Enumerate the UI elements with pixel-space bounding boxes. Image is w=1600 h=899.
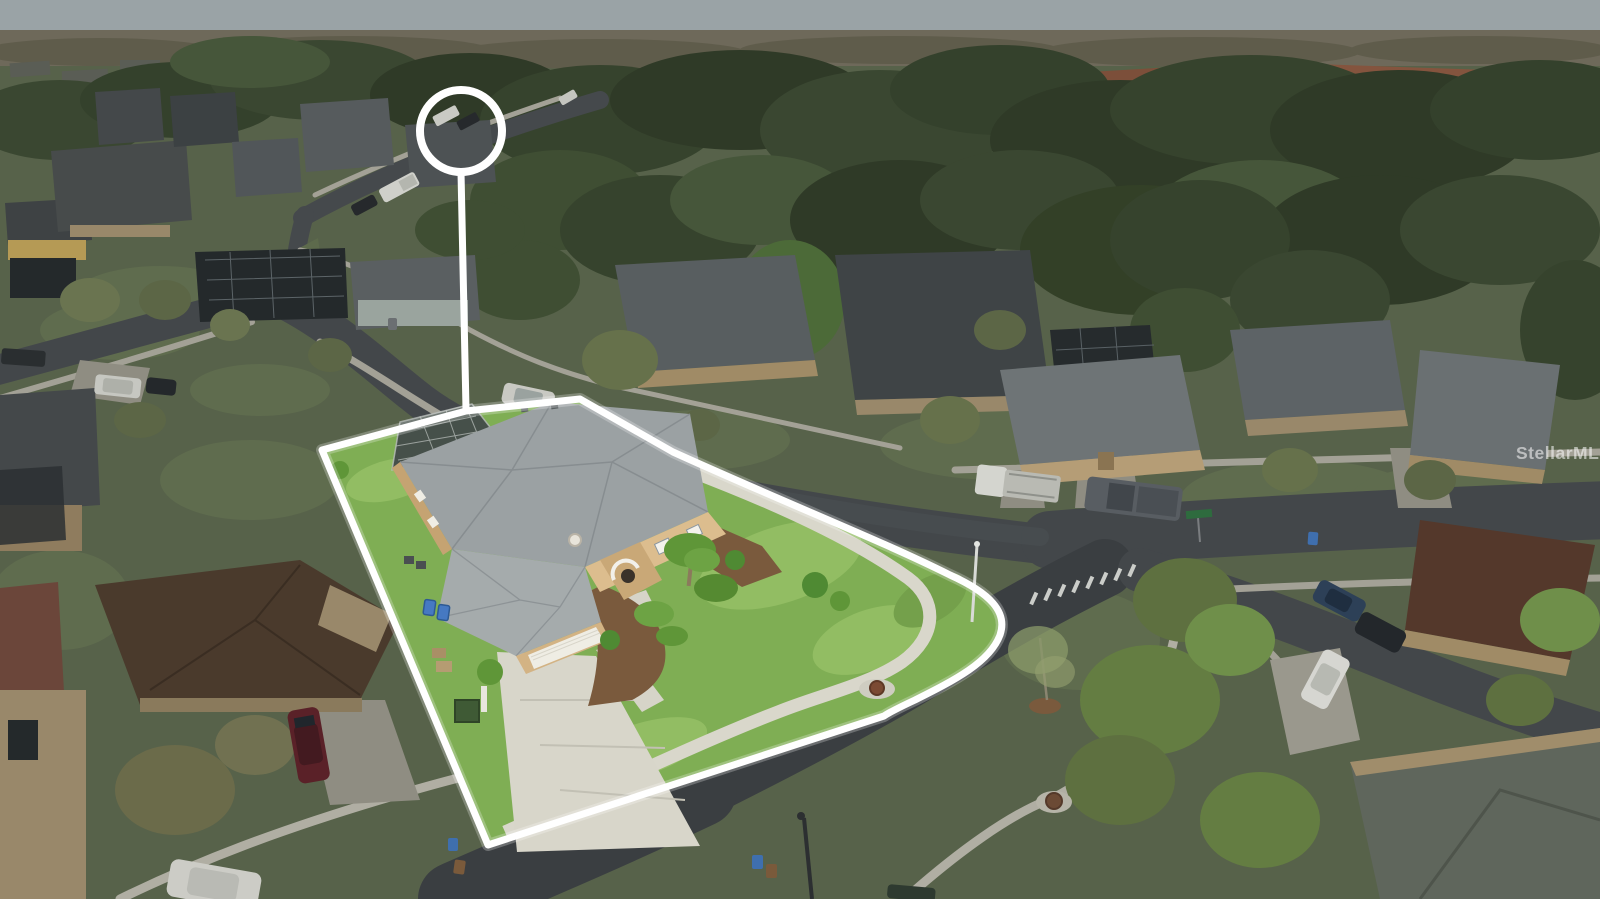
dark-pickup-far-left [1, 348, 46, 367]
manhole-southeast [1036, 791, 1072, 813]
dark-car-left [145, 377, 177, 396]
mulch-ring-sapling [1029, 698, 1061, 714]
ocular-window [569, 534, 581, 546]
pool-cage-top-left [195, 248, 348, 322]
house-east-1 [1230, 320, 1408, 436]
marker-stem [461, 172, 466, 409]
aerial-photo: StellarMLS [0, 0, 1600, 899]
watermark-text: StellarMLS [1516, 443, 1600, 463]
manhole-pad [859, 679, 895, 699]
house-behind-top-street [300, 98, 394, 172]
house-northeast-of-intersection [1000, 355, 1205, 485]
